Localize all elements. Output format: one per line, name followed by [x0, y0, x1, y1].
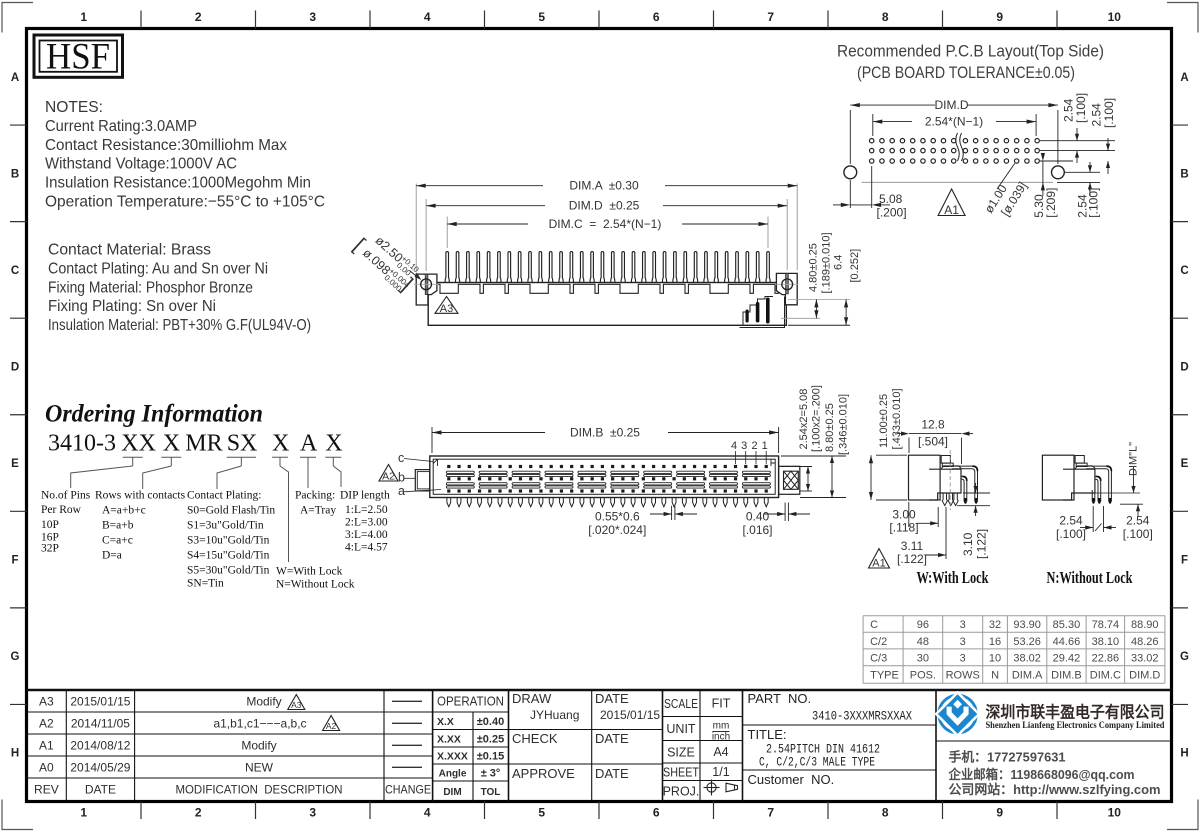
svg-text:A2: A2: [382, 471, 395, 483]
svg-text:38.02: 38.02: [1013, 652, 1041, 664]
svg-text:12.8: 12.8: [921, 418, 945, 432]
svg-text:4: 4: [731, 440, 737, 452]
svg-text:3: 3: [309, 10, 316, 24]
svg-text:DIM.C: DIM.C: [1090, 669, 1121, 681]
svg-text:F: F: [11, 555, 18, 567]
svg-text:Contact Resistance:30milliohm: Contact Resistance:30milliohm Max: [45, 137, 287, 154]
svg-text:DATE: DATE: [595, 731, 629, 746]
svg-text:X.XXX: X.XXX: [437, 751, 468, 763]
svg-text:DRAW: DRAW: [512, 691, 552, 706]
svg-text:c: c: [398, 451, 404, 465]
svg-text:93.90: 93.90: [1013, 619, 1041, 631]
svg-text:X: X: [272, 430, 289, 456]
svg-text:S0=Gold Flash/Tin: S0=Gold Flash/Tin: [187, 504, 275, 516]
svg-text:5: 5: [538, 10, 545, 24]
svg-text:Rows with contacts: Rows with contacts: [95, 489, 186, 501]
svg-text:b: b: [398, 471, 405, 485]
svg-text:4.80±0.25: 4.80±0.25: [807, 243, 819, 292]
svg-text:85.30: 85.30: [1053, 619, 1081, 631]
svg-text:B=a+b: B=a+b: [102, 519, 134, 531]
svg-text:6.4: 6.4: [833, 255, 845, 270]
svg-text:A2: A2: [39, 716, 54, 730]
svg-text:3: 3: [960, 652, 966, 664]
svg-text:2015/01/15: 2015/01/15: [600, 708, 660, 722]
svg-text:Current Rating:3.0AMP: Current Rating:3.0AMP: [45, 118, 197, 135]
svg-text:C: C: [870, 619, 878, 631]
svg-text:inch: inch: [712, 732, 730, 743]
svg-text:22.86: 22.86: [1092, 652, 1120, 664]
svg-text:0.40: 0.40: [746, 510, 770, 524]
svg-text:2: 2: [195, 10, 202, 24]
svg-text:A: A: [11, 72, 19, 84]
svg-text:[.100]: [.100]: [1087, 188, 1101, 218]
svg-text:2014/11/05: 2014/11/05: [71, 716, 130, 730]
svg-text:C: C: [11, 265, 19, 277]
svg-text:S5=30u"Gold/Tin: S5=30u"Gold/Tin: [187, 564, 270, 576]
svg-text:[.504]: [.504]: [918, 435, 948, 449]
svg-text:[.100]: [.100]: [1056, 527, 1086, 541]
svg-text:[.433±0.010]: [.433±0.010]: [891, 388, 903, 449]
svg-text:E: E: [11, 458, 19, 470]
svg-text:2014/05/29: 2014/05/29: [70, 760, 130, 774]
svg-text:[.122]: [.122]: [975, 529, 989, 559]
svg-text:[.100]: [.100]: [1123, 527, 1153, 541]
svg-text:A=Tray: A=Tray: [300, 504, 336, 516]
svg-text:2.54PITCH DIN 41612: 2.54PITCH DIN 41612: [766, 743, 880, 757]
svg-text:2.54*(N−1): 2.54*(N−1): [925, 115, 983, 129]
svg-text:2: 2: [195, 806, 202, 820]
svg-text:2.54: 2.54: [1059, 514, 1083, 528]
svg-text:3: 3: [309, 806, 316, 820]
svg-text:10: 10: [1108, 10, 1122, 24]
svg-text:Contact Plating: Au and Sn ove: Contact Plating: Au and Sn over Ni: [48, 260, 268, 277]
svg-text:B: B: [11, 168, 19, 180]
svg-text:D: D: [1180, 361, 1188, 373]
svg-text:A=a+b+c: A=a+b+c: [102, 504, 146, 516]
svg-text:[.100]: [.100]: [1074, 93, 1088, 123]
svg-text:UNIT: UNIT: [666, 722, 696, 736]
svg-text:5: 5: [538, 806, 545, 820]
svg-text:No.of Pins: No.of Pins: [41, 489, 91, 501]
svg-text:[.118]: [.118]: [889, 521, 918, 535]
svg-text:DIM.D ±0.25: DIM.D ±0.25: [569, 199, 640, 213]
svg-text:[.189±0.010]: [.189±0.010]: [820, 232, 832, 293]
svg-text:N:Without Lock: N:Without Lock: [1047, 568, 1133, 587]
svg-text:A3: A3: [291, 700, 302, 710]
svg-text:S1=3u"Gold/Tin: S1=3u"Gold/Tin: [187, 519, 264, 531]
svg-text:1: 1: [762, 440, 768, 452]
svg-text:3: 3: [960, 636, 966, 648]
svg-text:[.122]: [.122]: [897, 552, 927, 566]
svg-text:C: C: [1180, 265, 1188, 277]
svg-text:PROJ.: PROJ.: [663, 785, 700, 799]
svg-text:3.00: 3.00: [892, 508, 916, 522]
svg-text:手机：17727597631: 手机：17727597631: [949, 750, 1066, 765]
svg-text:10: 10: [989, 652, 1001, 664]
svg-text:B: B: [1180, 168, 1188, 180]
svg-text:A0: A0: [39, 760, 54, 774]
svg-text:A4: A4: [713, 745, 728, 759]
svg-text:3410-3XXXMRSXXAX: 3410-3XXXMRSXXAX: [812, 710, 912, 724]
svg-text:[.346±0.010]: [.346±0.010]: [838, 394, 850, 455]
svg-text:A1: A1: [944, 203, 959, 217]
svg-text:16: 16: [989, 636, 1001, 648]
svg-text:mm: mm: [713, 721, 730, 732]
svg-text:REV: REV: [34, 782, 59, 796]
svg-text:POS.: POS.: [910, 669, 936, 681]
svg-text:N=Without Lock: N=Without Lock: [276, 579, 355, 591]
svg-text:10P: 10P: [41, 519, 59, 531]
svg-text:2014/08/12: 2014/08/12: [70, 738, 130, 752]
svg-text:A3: A3: [440, 303, 453, 315]
svg-text:1: 1: [80, 806, 87, 820]
svg-text:企业邮箱：1198668096@qq.com: 企业邮箱：1198668096@qq.com: [948, 767, 1135, 782]
svg-text:TOL: TOL: [481, 787, 501, 798]
svg-text:6: 6: [653, 806, 660, 820]
svg-text:DIP length: DIP length: [340, 489, 390, 501]
svg-text:DIM"L": DIM"L": [1128, 442, 1140, 476]
svg-text:3410-3: 3410-3: [48, 430, 116, 456]
svg-text:7: 7: [767, 806, 774, 820]
svg-text:2.54x2=5.08: 2.54x2=5.08: [798, 389, 810, 450]
svg-text:Angle: Angle: [439, 769, 467, 780]
svg-text:53.26: 53.26: [1013, 636, 1041, 648]
svg-text:9: 9: [996, 806, 1003, 820]
svg-text:32: 32: [989, 619, 1001, 631]
svg-text:a: a: [398, 484, 405, 498]
svg-text:A: A: [300, 430, 318, 456]
svg-text:DIM.A: DIM.A: [1012, 669, 1043, 681]
svg-text:2: 2: [751, 440, 757, 452]
svg-text:X: X: [325, 430, 342, 456]
svg-text:4:L=4.57: 4:L=4.57: [345, 542, 388, 554]
svg-text:深圳市联丰盈电子有限公司: 深圳市联丰盈电子有限公司: [986, 703, 1165, 722]
svg-text:DIM.B: DIM.B: [1051, 669, 1082, 681]
svg-text:Insulation Resistance:1000Mego: Insulation Resistance:1000Megohm Min: [45, 175, 311, 192]
svg-text:SX: SX: [227, 430, 258, 456]
svg-text:DIM.C = 2.54*(N−1): DIM.C = 2.54*(N−1): [549, 217, 662, 231]
svg-text:Operation Temperature:−55°C to: Operation Temperature:−55°C to +105°C: [45, 194, 325, 211]
svg-text:3.10: 3.10: [961, 532, 975, 556]
svg-text:DATE: DATE: [595, 691, 629, 706]
svg-text:FIT: FIT: [712, 697, 731, 711]
svg-text:MR: MR: [185, 430, 222, 456]
svg-text:G: G: [1180, 651, 1189, 663]
svg-text:ROWS: ROWS: [946, 669, 980, 681]
svg-text:± 3°: ± 3°: [481, 768, 501, 780]
svg-text:44.66: 44.66: [1053, 636, 1081, 648]
svg-text:2015/01/15: 2015/01/15: [70, 694, 130, 708]
svg-text:SCALE: SCALE: [664, 697, 698, 711]
svg-text:SIZE: SIZE: [667, 746, 695, 760]
svg-text:[.200]: [.200]: [877, 206, 907, 220]
svg-text:4: 4: [424, 806, 431, 820]
svg-text:Contact Plating:: Contact Plating:: [187, 489, 261, 501]
svg-text:30: 30: [917, 652, 929, 664]
svg-text:3:L=4.00: 3:L=4.00: [345, 529, 388, 541]
svg-text:Fixing Plating: Sn over Ni: Fixing Plating: Sn over Ni: [48, 298, 216, 315]
svg-text:8: 8: [882, 10, 889, 24]
svg-text:5.08: 5.08: [879, 192, 903, 206]
svg-text:A: A: [1180, 72, 1188, 84]
svg-text:29.42: 29.42: [1053, 652, 1081, 664]
svg-text:C/2: C/2: [870, 636, 887, 648]
svg-text:[.100x2=.200]: [.100x2=.200]: [811, 385, 823, 452]
svg-text:48.26: 48.26: [1131, 636, 1159, 648]
svg-text:[.016]: [.016]: [742, 523, 772, 537]
svg-text:X.X: X.X: [437, 716, 454, 728]
svg-text:Insulation Material: PBT+30% G: Insulation Material: PBT+30% G.F(UL94V-O…: [48, 317, 311, 334]
svg-text:MODIFICATION DESCRIPTION: MODIFICATION DESCRIPTION: [176, 782, 343, 796]
svg-text:1:L=2.50: 1:L=2.50: [345, 504, 388, 516]
svg-text:[.020*.024]: [.020*.024]: [588, 523, 646, 537]
svg-text:±0.15: ±0.15: [477, 751, 504, 763]
svg-text:[0.252]: [0.252]: [849, 249, 861, 283]
svg-text:H: H: [11, 748, 19, 760]
svg-text:NOTES:: NOTES:: [45, 99, 103, 116]
svg-text:W:With Lock: W:With Lock: [917, 568, 989, 587]
svg-text:HSF: HSF: [46, 37, 110, 78]
svg-text:SHEET: SHEET: [663, 766, 699, 780]
svg-text:Packing:: Packing:: [295, 489, 335, 501]
svg-text:H: H: [1180, 748, 1188, 760]
svg-text:1/1: 1/1: [712, 765, 729, 779]
svg-text:±0.40: ±0.40: [477, 716, 504, 728]
svg-text:APPROVE: APPROVE: [512, 766, 575, 781]
svg-text:NEW: NEW: [245, 760, 274, 774]
svg-text:a1,b1,c1−−−a,b,c: a1,b1,c1−−−a,b,c: [213, 716, 306, 730]
svg-text:DIM: DIM: [443, 787, 461, 798]
svg-text:Recommended P.C.B Layout(Top S: Recommended P.C.B Layout(Top Side): [837, 42, 1104, 61]
svg-text:OPERATION: OPERATION: [437, 695, 504, 709]
svg-text:6: 6: [653, 10, 660, 24]
svg-text:3.11: 3.11: [901, 539, 924, 553]
svg-text:A3: A3: [39, 694, 54, 708]
svg-text:A2: A2: [326, 721, 337, 731]
svg-text:CHECK: CHECK: [512, 731, 558, 746]
svg-text:48: 48: [917, 636, 929, 648]
svg-text:TITLE:: TITLE:: [748, 727, 787, 742]
svg-text:4: 4: [424, 10, 431, 24]
svg-text:D=a: D=a: [102, 549, 122, 561]
svg-text:0.55*0.6: 0.55*0.6: [595, 510, 640, 524]
svg-text:10: 10: [1108, 806, 1122, 820]
svg-text:C, C/2,C/3 MALE TYPE: C, C/2,C/3 MALE TYPE: [759, 756, 875, 770]
svg-text:32P: 32P: [41, 543, 59, 555]
svg-text:2.54: 2.54: [1126, 514, 1150, 528]
svg-text:8.80±0.25: 8.80±0.25: [824, 403, 836, 452]
svg-text:A1: A1: [39, 738, 54, 752]
svg-text:3: 3: [741, 440, 747, 452]
svg-text:公司网站：http://www.szlfying.com: 公司网站：http://www.szlfying.com: [949, 782, 1161, 797]
svg-text:Fixing Material: Phosphor Bron: Fixing Material: Phosphor Bronze: [48, 279, 253, 296]
svg-text:A1: A1: [872, 558, 885, 570]
svg-text:E: E: [1181, 458, 1189, 470]
svg-text:11.00±0.25: 11.00±0.25: [878, 394, 890, 448]
svg-text:7: 7: [767, 10, 774, 24]
svg-text:C=a+c: C=a+c: [102, 534, 133, 546]
svg-text:N: N: [991, 669, 999, 681]
svg-text:C/3: C/3: [870, 652, 887, 664]
svg-text:88.90: 88.90: [1131, 619, 1159, 631]
svg-text:DIM.D: DIM.D: [1129, 669, 1160, 681]
svg-text:3: 3: [960, 619, 966, 631]
svg-text:X.XX: X.XX: [437, 733, 461, 745]
svg-text:±0.25: ±0.25: [477, 733, 504, 745]
svg-text:PART NO.: PART NO.: [748, 691, 812, 706]
svg-text:33.02: 33.02: [1131, 652, 1159, 664]
svg-text:W=With Lock: W=With Lock: [276, 565, 343, 577]
svg-text:Withstand Voltage:1000V AC: Withstand Voltage:1000V AC: [45, 156, 237, 173]
svg-text:Contact Material: Brass: Contact Material: Brass: [48, 242, 211, 259]
svg-text:(PCB BOARD TOLERANCE±0.05): (PCB BOARD TOLERANCE±0.05): [857, 63, 1075, 82]
svg-text:S4=15u"Gold/Tin: S4=15u"Gold/Tin: [187, 549, 270, 561]
svg-text:G: G: [11, 651, 20, 663]
svg-text:S3=10u"Gold/Tin: S3=10u"Gold/Tin: [187, 534, 270, 546]
svg-text:XX: XX: [121, 430, 156, 456]
svg-text:Shenzhen Lianfeng Electronics: Shenzhen Lianfeng Electronics Company Li…: [986, 720, 1165, 730]
svg-text:DIM.B ±0.25: DIM.B ±0.25: [570, 426, 640, 440]
svg-text:DIM.A ±0.30: DIM.A ±0.30: [569, 179, 639, 193]
svg-text:96: 96: [917, 619, 929, 631]
svg-text:X: X: [163, 430, 180, 456]
svg-text:8: 8: [882, 806, 889, 820]
svg-text:38.10: 38.10: [1092, 636, 1120, 648]
svg-text:[.100]: [.100]: [1102, 98, 1116, 128]
svg-text:Ordering Information: Ordering Information: [45, 401, 263, 428]
svg-text:Modify: Modify: [246, 694, 281, 708]
svg-text:Customer NO.: Customer NO.: [748, 772, 835, 787]
svg-text:TYPE: TYPE: [870, 669, 899, 681]
svg-text:SN=Tin: SN=Tin: [187, 578, 224, 590]
svg-text:78.74: 78.74: [1092, 619, 1120, 631]
svg-text:1: 1: [80, 10, 87, 24]
svg-text:DATE: DATE: [85, 782, 116, 796]
svg-text:DATE: DATE: [595, 766, 629, 781]
svg-text:DIM.D: DIM.D: [935, 98, 969, 112]
svg-text:[.209]: [.209]: [1044, 188, 1058, 218]
svg-text:CHANGE: CHANGE: [385, 782, 431, 796]
svg-text:F: F: [1181, 555, 1188, 567]
svg-text:Modify: Modify: [241, 738, 276, 752]
svg-text:Per Row: Per Row: [41, 504, 82, 516]
svg-text:D: D: [11, 361, 19, 373]
svg-text:9: 9: [996, 10, 1003, 24]
svg-text:2:L=3.00: 2:L=3.00: [345, 517, 388, 529]
svg-text:JYHuang: JYHuang: [530, 708, 579, 722]
